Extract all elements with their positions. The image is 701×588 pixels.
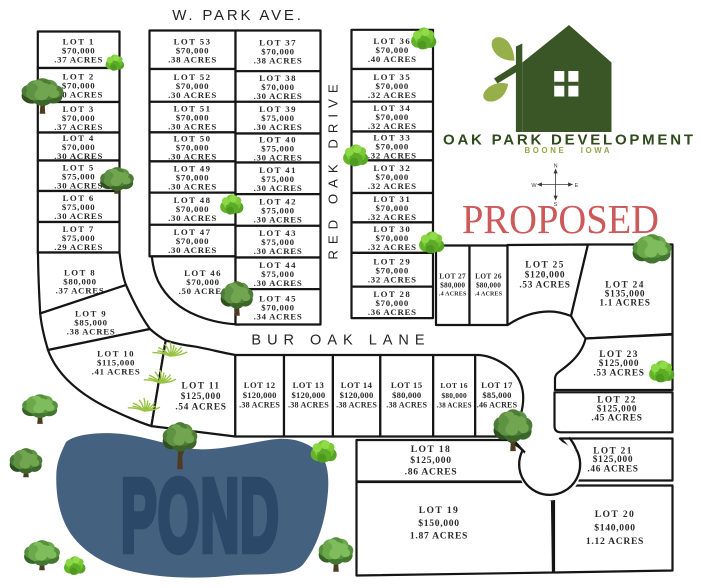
svg-text:.30 ACRES: .30 ACRES	[254, 153, 303, 163]
svg-text:.32 ACRES: .32 ACRES	[368, 181, 417, 191]
svg-text:LOT 27: LOT 27	[439, 272, 466, 281]
svg-text:RED OAK DRIVE: RED OAK DRIVE	[326, 78, 341, 259]
svg-text:LOT 19: LOT 19	[419, 505, 459, 516]
svg-text:.30 ACRES: .30 ACRES	[254, 214, 303, 224]
svg-text:.38 ACRES: .38 ACRES	[168, 54, 217, 64]
svg-text:$125,000: $125,000	[599, 358, 639, 369]
svg-text:.38 ACRES: .38 ACRES	[239, 401, 280, 410]
svg-text:.38 ACRES: .38 ACRES	[386, 401, 427, 410]
svg-text:POND: POND	[121, 459, 280, 573]
svg-text:1.1 ACRES: 1.1 ACRES	[599, 299, 650, 309]
svg-text:E: E	[575, 183, 579, 189]
svg-text:.38 ACRES: .38 ACRES	[254, 55, 303, 65]
svg-text:$125,000: $125,000	[181, 391, 221, 402]
svg-text:.38 ACRES: .38 ACRES	[437, 403, 472, 410]
svg-text:W. PARK AVE.: W. PARK AVE.	[172, 7, 303, 24]
svg-text:1.12 ACRES: 1.12 ACRES	[586, 536, 644, 547]
svg-text:.36 ACRES: .36 ACRES	[368, 307, 417, 317]
svg-text:.4 ACRES: .4 ACRES	[439, 292, 467, 298]
svg-text:$125,000: $125,000	[593, 454, 633, 465]
svg-text:LOT 12: LOT 12	[244, 380, 276, 390]
svg-text:.30 ACRES: .30 ACRES	[168, 182, 217, 192]
svg-text:.37 ACRES: .37 ACRES	[54, 122, 103, 132]
svg-text:LOT 17: LOT 17	[481, 380, 513, 390]
svg-text:.40 ACRES: .40 ACRES	[368, 54, 417, 64]
svg-text:BUR OAK LANE: BUR OAK LANE	[251, 333, 430, 349]
svg-text:.30 ACRES: .30 ACRES	[168, 245, 217, 255]
svg-text:LOT 15: LOT 15	[391, 380, 423, 390]
svg-text:.38 ACRES: .38 ACRES	[288, 401, 329, 410]
svg-text:.32 ACRES: .32 ACRES	[368, 242, 417, 252]
svg-text:LOT 11: LOT 11	[182, 382, 221, 392]
svg-text:$150,000: $150,000	[418, 518, 460, 529]
svg-text:.37 ACRES: .37 ACRES	[54, 54, 103, 64]
svg-text:.32 ACRES: .32 ACRES	[368, 121, 417, 131]
svg-text:LOT 13: LOT 13	[293, 380, 325, 390]
svg-text:PROPOSED: PROPOSED	[462, 196, 659, 242]
svg-text:LOT 16: LOT 16	[440, 381, 468, 390]
svg-text:.32 ACRES: .32 ACRES	[368, 150, 417, 160]
svg-text:$120,000: $120,000	[525, 270, 565, 281]
svg-text:.30 ACRES: .30 ACRES	[254, 122, 303, 132]
svg-text:$80,000: $80,000	[441, 391, 467, 400]
svg-text:.30 ACRES: .30 ACRES	[168, 122, 217, 132]
svg-text:$120,000: $120,000	[292, 390, 326, 400]
svg-text:.34 ACRES: .34 ACRES	[254, 311, 303, 321]
svg-text:LOT 25: LOT 25	[525, 261, 565, 271]
svg-text:.32 ACRES: .32 ACRES	[368, 274, 417, 284]
svg-text:W: W	[531, 183, 537, 189]
svg-text:LOT 26: LOT 26	[475, 272, 502, 281]
svg-text:.30 ACRES: .30 ACRES	[168, 151, 217, 161]
svg-text:$80,000: $80,000	[440, 281, 465, 290]
svg-text:.53 ACRES: .53 ACRES	[519, 281, 570, 291]
svg-text:.41 ACRES: .41 ACRES	[92, 367, 141, 377]
svg-text:.50 ACRES: .50 ACRES	[179, 286, 228, 296]
svg-text:.30 ACRES: .30 ACRES	[54, 180, 103, 190]
svg-text:$140,000: $140,000	[594, 523, 636, 534]
svg-text:.4 ACRES: .4 ACRES	[475, 292, 503, 298]
svg-text:$120,000: $120,000	[243, 390, 277, 400]
svg-text:.30 ACRES: .30 ACRES	[168, 90, 217, 100]
svg-text:$125,000: $125,000	[410, 455, 452, 466]
svg-text:.54 ACRES: .54 ACRES	[175, 403, 226, 413]
svg-text:$85,000: $85,000	[482, 390, 511, 400]
svg-text:BOONE IOWA: BOONE IOWA	[525, 146, 610, 155]
svg-text:$80,000: $80,000	[476, 281, 501, 290]
svg-text:.30 ACRES: .30 ACRES	[168, 213, 217, 223]
svg-text:.45 ACRES: .45 ACRES	[591, 414, 642, 424]
svg-text:LOT 18: LOT 18	[411, 444, 451, 455]
svg-text:.30 ACRES: .30 ACRES	[54, 211, 103, 221]
svg-text:.30 ACRES: .30 ACRES	[254, 246, 303, 256]
svg-text:.38 ACRES: .38 ACRES	[336, 401, 377, 410]
svg-text:.30 ACRES: .30 ACRES	[254, 278, 303, 288]
svg-text:.29 ACRES: .29 ACRES	[54, 242, 103, 252]
svg-text:.32 ACRES: .32 ACRES	[368, 90, 417, 100]
svg-text:.53 ACRES: .53 ACRES	[593, 369, 644, 379]
svg-text:.46 ACRES: .46 ACRES	[477, 401, 518, 410]
svg-text:.30 ACRES: .30 ACRES	[254, 183, 303, 193]
svg-text:.38 ACRES: .38 ACRES	[67, 327, 116, 337]
svg-text:.46 ACRES: .46 ACRES	[587, 465, 638, 475]
svg-text:.30 ACRES: .30 ACRES	[254, 91, 303, 101]
svg-text:N: N	[554, 164, 558, 170]
svg-text:LOT 14: LOT 14	[341, 380, 373, 390]
svg-text:$120,000: $120,000	[340, 390, 374, 400]
svg-text:.86 ACRES: .86 ACRES	[405, 467, 458, 478]
svg-text:1.87 ACRES: 1.87 ACRES	[410, 531, 468, 542]
svg-text:.32 ACRES: .32 ACRES	[368, 212, 417, 222]
svg-text:LOT 20: LOT 20	[595, 509, 635, 520]
svg-text:$80,000: $80,000	[392, 390, 421, 400]
